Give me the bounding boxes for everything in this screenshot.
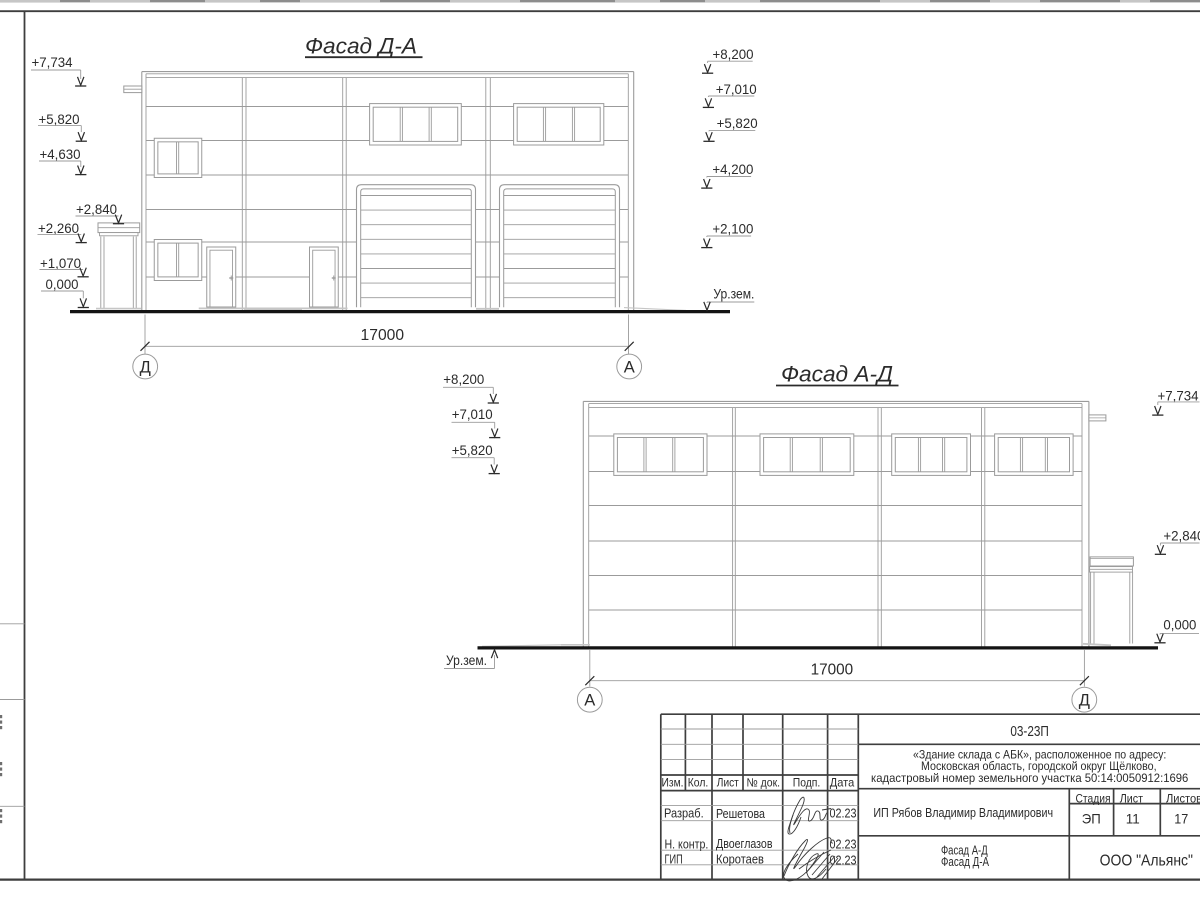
svg-text:Кол.: Кол. (688, 776, 709, 790)
svg-text:А: А (624, 358, 635, 376)
svg-text:+7,734: +7,734 (32, 54, 73, 70)
svg-text:+7,010: +7,010 (452, 406, 493, 422)
svg-text:+2,840: +2,840 (1163, 528, 1200, 544)
svg-text:Лист: Лист (1120, 791, 1144, 805)
svg-text:+2,840: +2,840 (76, 201, 117, 217)
svg-text:+4,200: +4,200 (712, 161, 753, 177)
svg-text:17000: 17000 (361, 327, 405, 344)
svg-text:+7,734: +7,734 (1158, 387, 1199, 403)
svg-text:0,000: 0,000 (46, 276, 79, 292)
svg-text:ИП Рябов Владимир Владимирович: ИП Рябов Владимир Владимирович (873, 806, 1053, 820)
svg-text:Коротаев: Коротаев (716, 853, 764, 867)
svg-text:+8,200: +8,200 (713, 46, 754, 62)
svg-text:Лист: Лист (717, 776, 739, 790)
svg-text:А: А (584, 692, 595, 710)
svg-text:+2,260: +2,260 (38, 220, 79, 236)
svg-text:Разраб.: Разраб. (664, 806, 704, 820)
svg-text:02.23: 02.23 (830, 854, 857, 868)
svg-text:Двоеглазов: Двоеглазов (716, 837, 773, 851)
svg-text:Дата: Дата (830, 776, 855, 790)
svg-text:+5,820: +5,820 (39, 111, 80, 127)
svg-text:17000: 17000 (811, 662, 854, 679)
svg-text:Ур.зем.: Ур.зем. (446, 652, 487, 668)
svg-text:ЭП: ЭП (1082, 811, 1101, 827)
svg-text:Д: Д (140, 358, 151, 376)
svg-text:Ур.зем.: Ур.зем. (713, 286, 754, 302)
svg-text:+5,820: +5,820 (717, 115, 758, 131)
svg-text:Н. контр.: Н. контр. (665, 837, 709, 851)
svg-text:+2,100: +2,100 (712, 221, 753, 237)
svg-text:Подп.: Подп. (793, 776, 821, 790)
svg-text:17: 17 (1174, 811, 1188, 827)
svg-text:Д: Д (1079, 692, 1090, 710)
svg-text:02.23: 02.23 (830, 807, 857, 821)
svg-text:Стадия: Стадия (1076, 791, 1111, 805)
svg-text:Фасад Д-А: Фасад Д-А (305, 33, 417, 58)
svg-text:Фасад Д-А: Фасад Д-А (941, 855, 990, 869)
svg-text:+7,010: +7,010 (716, 81, 757, 97)
svg-text:02.23: 02.23 (830, 838, 857, 852)
svg-text:Листов: Листов (1166, 791, 1200, 805)
svg-text:+4,630: +4,630 (40, 146, 81, 162)
svg-text:0,000: 0,000 (1163, 617, 1196, 633)
svg-text:03-23П: 03-23П (1010, 724, 1049, 740)
svg-text:кадастровый номер земельного у: кадастровый номер земельного участка 50:… (871, 771, 1189, 785)
svg-text:№ док.: № док. (747, 776, 781, 790)
svg-text:Фасад А-Д: Фасад А-Д (781, 361, 893, 386)
svg-text:ООО "Альянс": ООО "Альянс" (1100, 853, 1193, 870)
svg-text:Изм.: Изм. (662, 776, 684, 790)
svg-text:11: 11 (1126, 811, 1140, 827)
svg-text:Решетова: Решетова (716, 807, 765, 821)
svg-text:+8,200: +8,200 (443, 371, 484, 387)
svg-text:ГИП: ГИП (665, 853, 683, 867)
svg-text:+1,070: +1,070 (40, 255, 81, 271)
svg-text:+5,820: +5,820 (452, 442, 493, 458)
